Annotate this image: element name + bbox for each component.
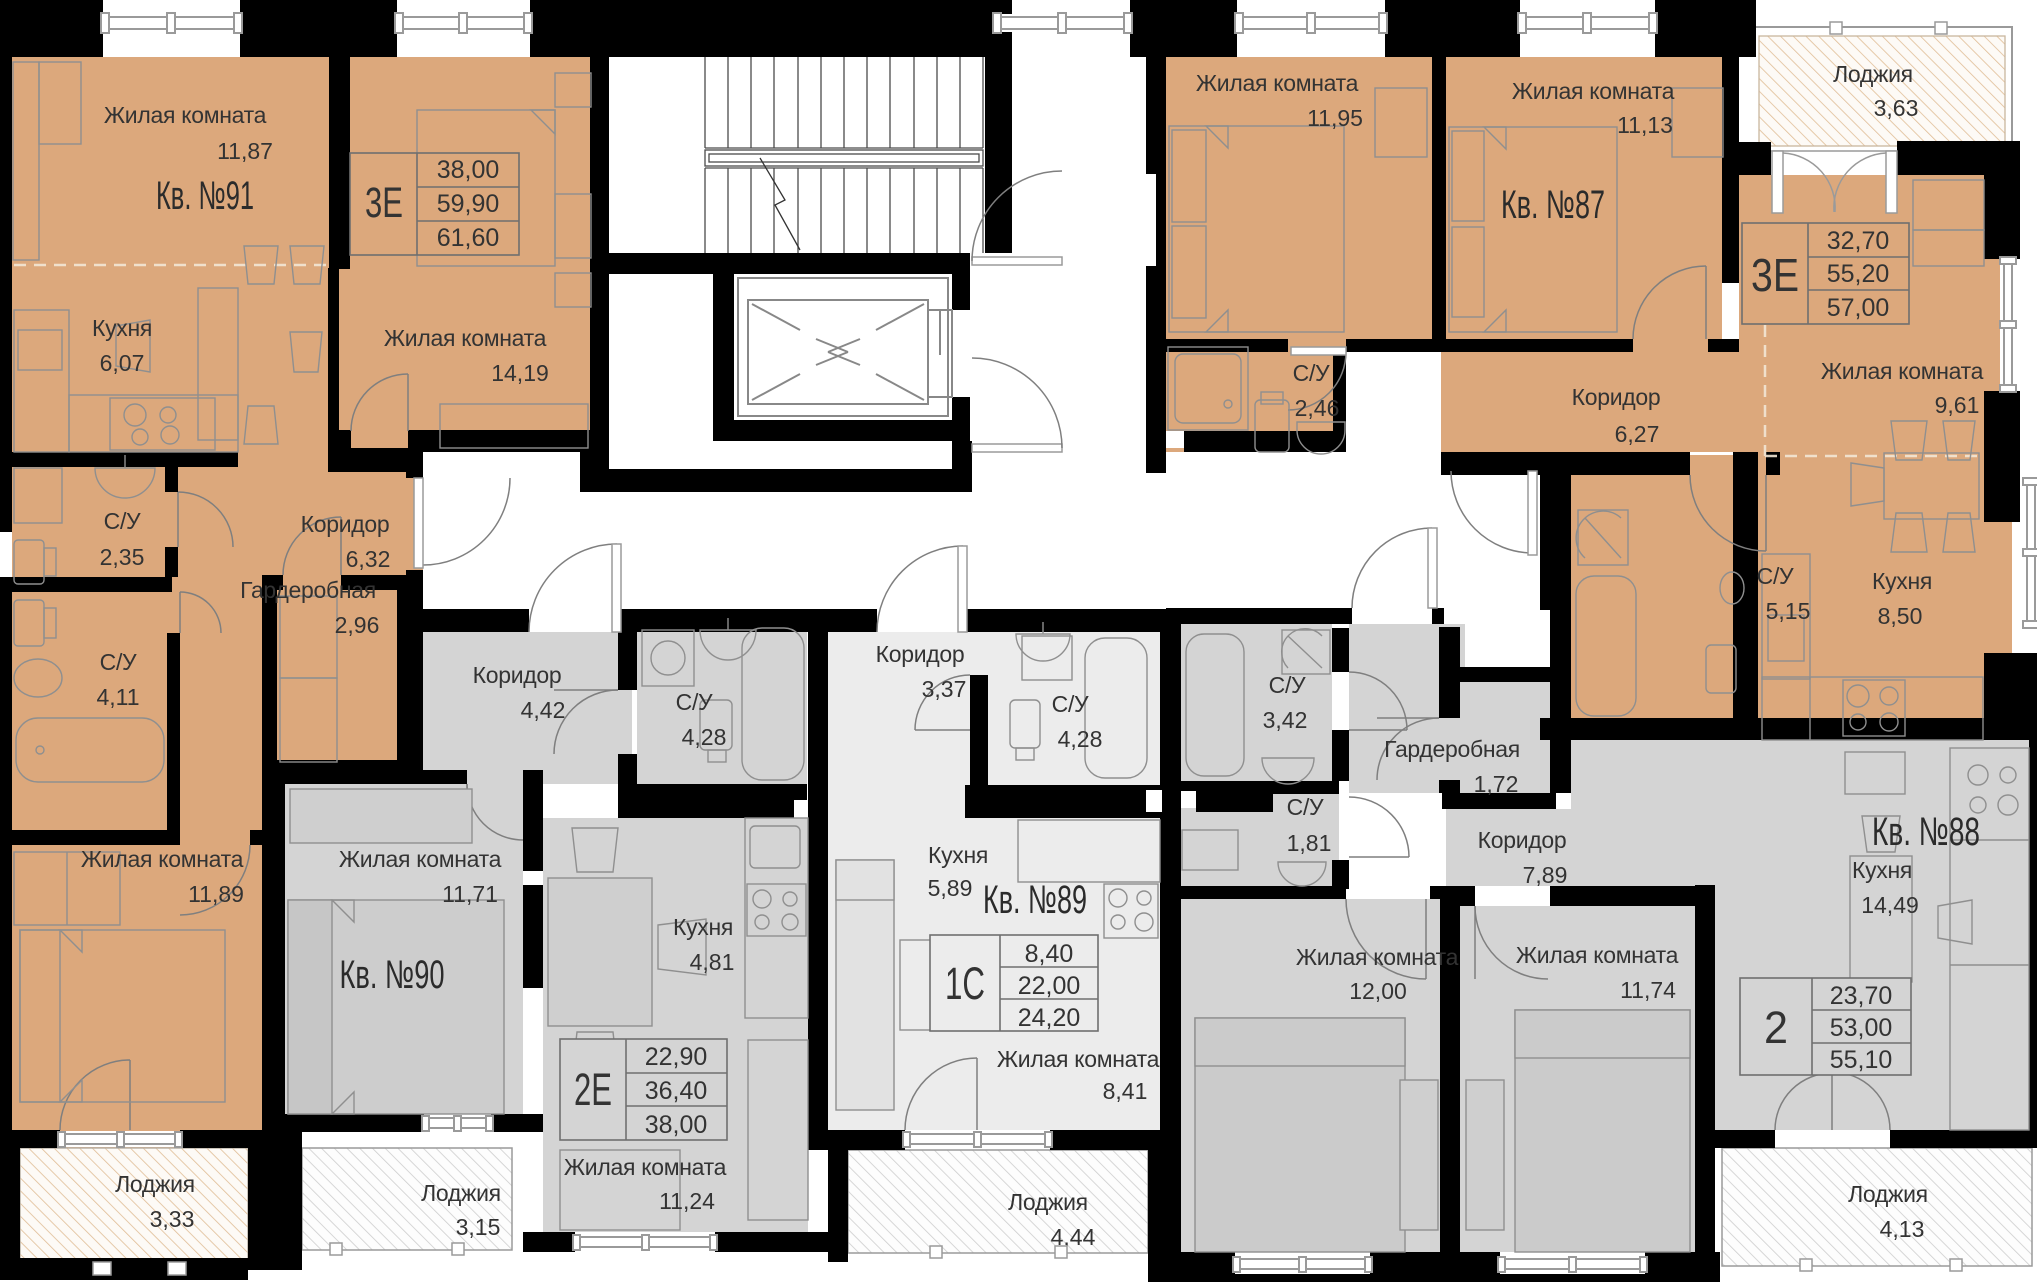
svg-text:Коридор: Коридор xyxy=(473,662,562,688)
svg-text:С/У: С/У xyxy=(1052,691,1089,717)
svg-text:4,81: 4,81 xyxy=(690,949,735,975)
svg-text:Кв. №89: Кв. №89 xyxy=(983,878,1087,922)
svg-text:32,70: 32,70 xyxy=(1827,227,1890,255)
svg-text:6,32: 6,32 xyxy=(346,546,391,572)
svg-text:Жилая комната: Жилая комната xyxy=(104,102,267,128)
svg-text:Кв. №91: Кв. №91 xyxy=(156,174,254,218)
svg-text:Жилая комната: Жилая комната xyxy=(339,846,502,872)
svg-text:3Е: 3Е xyxy=(365,179,403,227)
svg-text:Кухня: Кухня xyxy=(673,914,733,940)
svg-text:Лоджия: Лоджия xyxy=(1008,1189,1088,1215)
svg-text:Жилая комната: Жилая комната xyxy=(997,1046,1160,1072)
svg-text:3Е: 3Е xyxy=(1751,249,1799,301)
svg-text:3,15: 3,15 xyxy=(456,1214,501,1240)
svg-text:1С: 1С xyxy=(945,958,985,1009)
svg-text:Жилая комната: Жилая комната xyxy=(1516,942,1679,968)
svg-text:11,71: 11,71 xyxy=(442,881,498,907)
svg-text:4,28: 4,28 xyxy=(1058,726,1103,752)
svg-text:2: 2 xyxy=(1764,1002,1788,1053)
svg-text:Гардеробная: Гардеробная xyxy=(1384,736,1520,762)
svg-text:38,00: 38,00 xyxy=(437,156,500,184)
svg-text:2Е: 2Е xyxy=(574,1064,612,1115)
svg-text:8,41: 8,41 xyxy=(1103,1078,1148,1104)
svg-text:3,42: 3,42 xyxy=(1263,707,1308,733)
svg-text:55,10: 55,10 xyxy=(1830,1046,1893,1074)
svg-text:6,07: 6,07 xyxy=(100,350,145,376)
svg-text:Жилая комната: Жилая комната xyxy=(1296,944,1459,970)
svg-text:Лоджия: Лоджия xyxy=(421,1180,501,1206)
svg-text:Жилая комната: Жилая комната xyxy=(384,325,547,351)
svg-text:Кухня: Кухня xyxy=(92,315,152,341)
svg-text:4,42: 4,42 xyxy=(521,697,566,723)
svg-text:Жилая комната: Жилая комната xyxy=(1821,358,1984,384)
svg-text:С/У: С/У xyxy=(1287,794,1324,820)
svg-text:9,61: 9,61 xyxy=(1935,392,1980,418)
svg-text:Жилая комната: Жилая комната xyxy=(81,846,244,872)
svg-text:2,46: 2,46 xyxy=(1295,395,1340,421)
svg-text:3,33: 3,33 xyxy=(150,1206,195,1232)
svg-text:11,74: 11,74 xyxy=(1620,977,1676,1003)
svg-text:Жилая комната: Жилая комната xyxy=(1196,70,1359,96)
svg-text:С/У: С/У xyxy=(676,689,713,715)
svg-text:Жилая комната: Жилая комната xyxy=(1512,78,1675,104)
svg-text:Кв. №87: Кв. №87 xyxy=(1501,183,1605,227)
svg-text:11,13: 11,13 xyxy=(1617,112,1673,138)
svg-text:2,35: 2,35 xyxy=(100,544,145,570)
svg-text:8,50: 8,50 xyxy=(1878,603,1923,629)
svg-text:Кв. №90: Кв. №90 xyxy=(340,953,445,997)
svg-text:61,60: 61,60 xyxy=(437,224,500,252)
svg-text:2,96: 2,96 xyxy=(335,612,380,638)
svg-text:8,40: 8,40 xyxy=(1025,940,1074,968)
svg-text:38,00: 38,00 xyxy=(645,1111,708,1139)
svg-text:1,81: 1,81 xyxy=(1287,830,1332,856)
svg-text:4,28: 4,28 xyxy=(682,724,727,750)
svg-text:53,00: 53,00 xyxy=(1830,1014,1893,1042)
svg-text:Лоджия: Лоджия xyxy=(115,1171,195,1197)
svg-text:С/У: С/У xyxy=(1293,360,1330,386)
svg-text:Жилая комната: Жилая комната xyxy=(564,1154,727,1180)
svg-text:22,90: 22,90 xyxy=(645,1043,708,1071)
svg-text:3,63: 3,63 xyxy=(1874,95,1919,121)
svg-text:11,24: 11,24 xyxy=(659,1188,715,1214)
svg-text:14,19: 14,19 xyxy=(491,360,549,386)
svg-text:55,20: 55,20 xyxy=(1827,260,1890,288)
svg-text:С/У: С/У xyxy=(1269,672,1306,698)
svg-text:36,40: 36,40 xyxy=(645,1077,708,1105)
svg-text:Коридор: Коридор xyxy=(301,511,390,537)
svg-text:11,95: 11,95 xyxy=(1307,105,1363,131)
svg-text:Коридор: Коридор xyxy=(876,641,965,667)
svg-text:Кухня: Кухня xyxy=(1852,857,1912,883)
svg-text:4,13: 4,13 xyxy=(1880,1216,1925,1242)
svg-text:Лоджия: Лоджия xyxy=(1848,1181,1928,1207)
svg-text:14,49: 14,49 xyxy=(1861,892,1919,918)
svg-text:3,37: 3,37 xyxy=(922,676,967,702)
svg-text:5,89: 5,89 xyxy=(928,875,973,901)
svg-text:Кухня: Кухня xyxy=(1872,568,1932,594)
svg-text:1,72: 1,72 xyxy=(1474,771,1519,797)
svg-text:6,27: 6,27 xyxy=(1615,421,1660,447)
svg-text:22,00: 22,00 xyxy=(1018,972,1081,1000)
svg-text:Коридор: Коридор xyxy=(1572,384,1661,410)
svg-text:24,20: 24,20 xyxy=(1018,1004,1081,1032)
svg-text:4,11: 4,11 xyxy=(96,684,139,710)
svg-text:12,00: 12,00 xyxy=(1349,978,1407,1004)
svg-text:Гардеробная: Гардеробная xyxy=(240,577,376,603)
svg-text:Коридор: Коридор xyxy=(1478,827,1567,853)
svg-text:Кухня: Кухня xyxy=(928,842,988,868)
svg-text:Лоджия: Лоджия xyxy=(1833,61,1913,87)
svg-text:11,89: 11,89 xyxy=(188,881,244,907)
svg-text:57,00: 57,00 xyxy=(1827,294,1890,322)
svg-text:11,87: 11,87 xyxy=(217,138,273,164)
svg-text:С/У: С/У xyxy=(100,649,137,675)
svg-text:7,89: 7,89 xyxy=(1523,862,1568,888)
svg-text:23,70: 23,70 xyxy=(1830,982,1893,1010)
svg-text:59,90: 59,90 xyxy=(437,190,500,218)
svg-text:С/У: С/У xyxy=(1757,563,1794,589)
svg-text:С/У: С/У xyxy=(104,508,141,534)
svg-text:Кв. №88: Кв. №88 xyxy=(1872,810,1980,854)
svg-text:5,15: 5,15 xyxy=(1766,598,1811,624)
